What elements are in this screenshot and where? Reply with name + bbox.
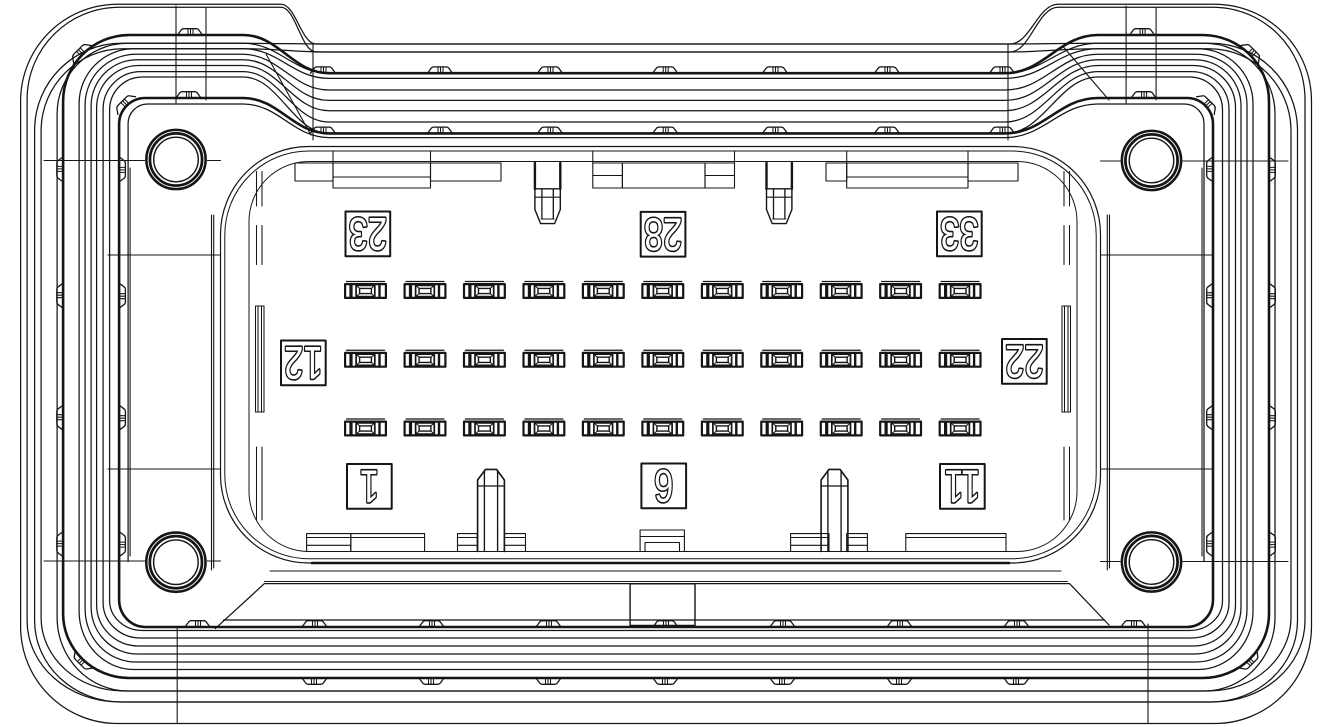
svg-text:22: 22 [1005,335,1043,387]
svg-text:1: 1 [360,460,379,512]
svg-text:33: 33 [940,208,978,260]
svg-text:12: 12 [284,337,322,389]
svg-text:28: 28 [644,208,682,260]
svg-text:6: 6 [654,460,673,512]
svg-text:11: 11 [944,460,980,512]
svg-text:23: 23 [349,208,387,260]
